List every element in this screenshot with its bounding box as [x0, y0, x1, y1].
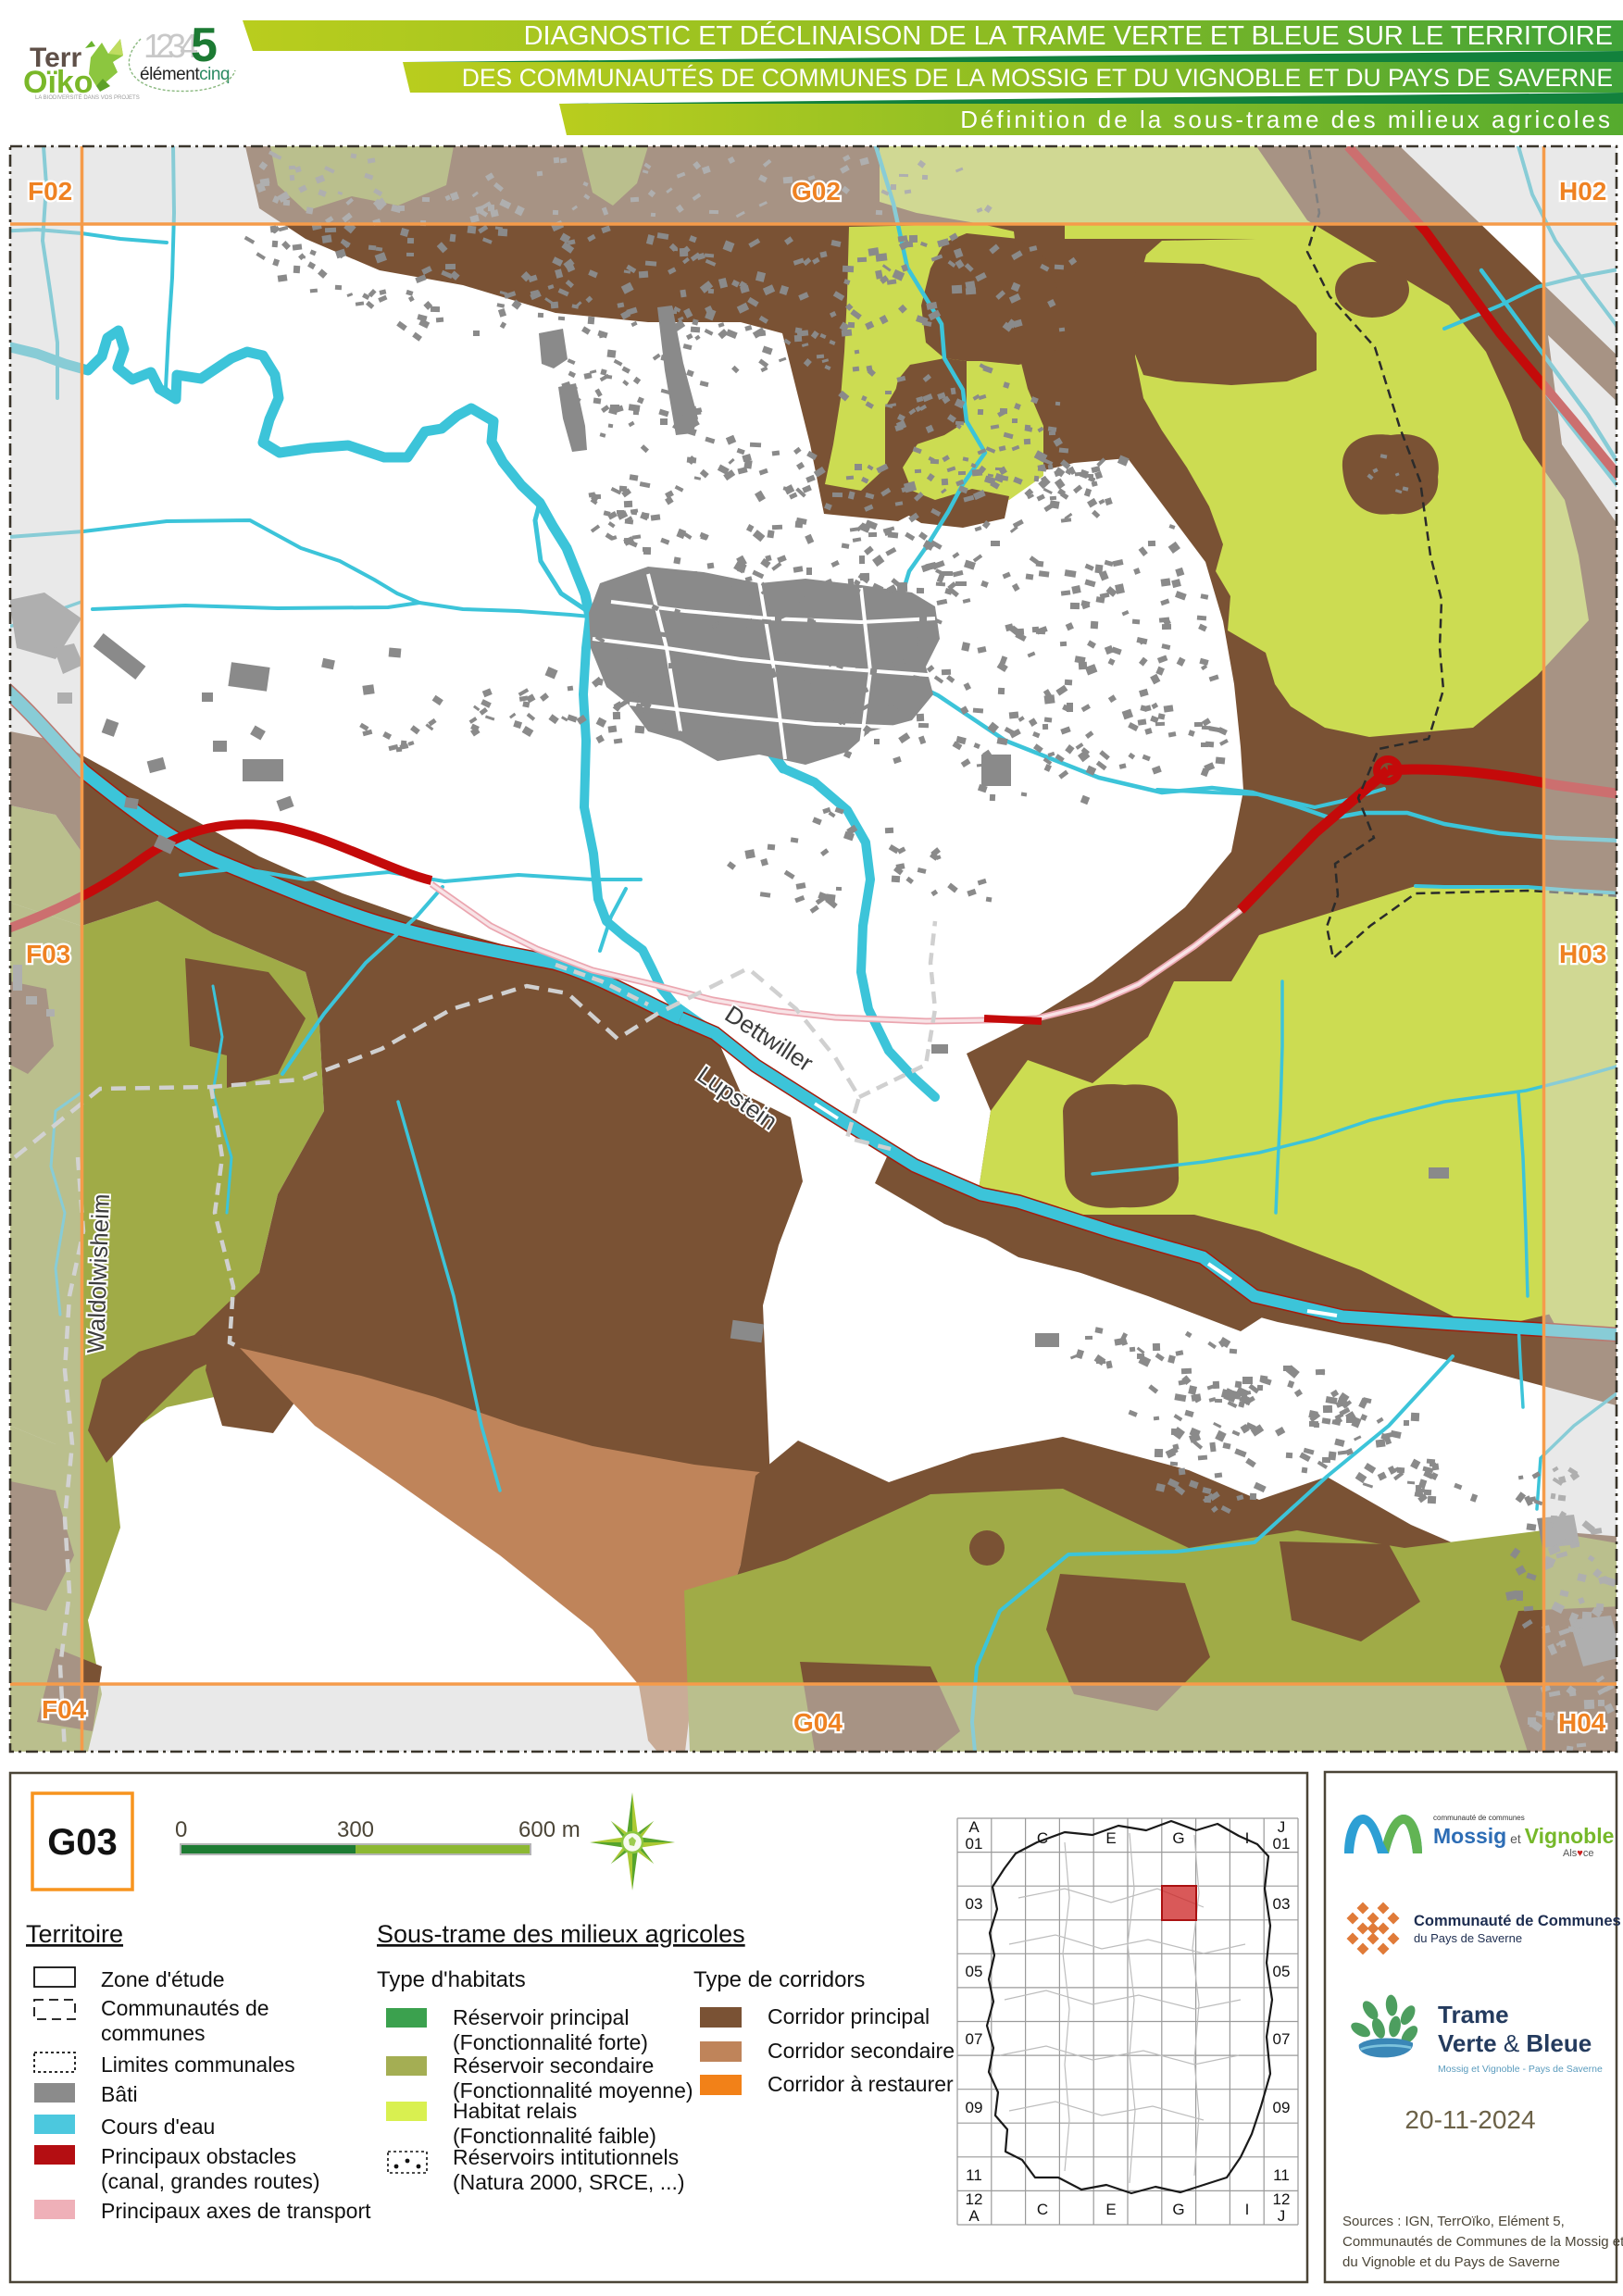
svg-text:F02: F02: [28, 177, 72, 206]
svg-text:Principaux axes de transport: Principaux axes de transport: [101, 2199, 371, 2223]
svg-text:Communauté de Communes: Communauté de Communes: [1414, 1913, 1621, 1929]
svg-text:G04: G04: [793, 1708, 843, 1737]
svg-text:Réservoir principal: Réservoir principal: [453, 2005, 629, 2029]
svg-text:G: G: [1172, 2201, 1184, 2218]
svg-text:E: E: [1105, 2201, 1116, 2218]
svg-text:H04: H04: [1558, 1708, 1606, 1737]
svg-text:Type d'habitats: Type d'habitats: [377, 1967, 526, 1992]
svg-text:C: C: [1037, 2201, 1048, 2218]
svg-text:communes: communes: [101, 2021, 205, 2045]
svg-text:05: 05: [966, 1963, 983, 1980]
svg-text:A: A: [968, 2207, 980, 2225]
svg-text:I: I: [1245, 2201, 1250, 2218]
svg-text:01: 01: [966, 1835, 983, 1853]
svg-text:01: 01: [1273, 1835, 1291, 1853]
svg-text:(canal, grandes routes): (canal, grandes routes): [101, 2169, 320, 2193]
svg-text:J: J: [1278, 1818, 1286, 1836]
svg-text:03: 03: [1273, 1895, 1291, 1913]
svg-text:0: 0: [175, 1817, 187, 1842]
svg-text:élémentcinq: élémentcinq: [140, 65, 230, 84]
svg-text:du Pays de Saverne: du Pays de Saverne: [1414, 1931, 1522, 1945]
svg-text:Communautés de: Communautés de: [101, 1996, 269, 2020]
svg-text:12: 12: [1273, 2190, 1291, 2208]
svg-text:Corridor secondaire: Corridor secondaire: [768, 2039, 955, 2063]
svg-text:Cours d'eau: Cours d'eau: [101, 2115, 215, 2139]
svg-text:Zone d'étude: Zone d'étude: [101, 1967, 225, 1991]
svg-text:300: 300: [337, 1817, 374, 1842]
svg-text:(Fonctionnalité forte): (Fonctionnalité forte): [453, 2030, 648, 2054]
svg-text:Bâti: Bâti: [101, 2082, 138, 2106]
svg-text:F04: F04: [42, 1695, 87, 1724]
svg-text:(Natura 2000, SRCE, ...): (Natura 2000, SRCE, ...): [453, 2170, 685, 2194]
svg-text:C: C: [1037, 1829, 1048, 1847]
svg-text:Limites communales: Limites communales: [101, 2053, 295, 2077]
svg-text:1234: 1234: [144, 27, 197, 65]
svg-text:07: 07: [966, 2030, 983, 2048]
svg-text:G: G: [1172, 1829, 1184, 1847]
svg-text:Verte & Bleue: Verte & Bleue: [1438, 2029, 1592, 2057]
svg-text:Réservoir secondaire: Réservoir secondaire: [453, 2053, 654, 2078]
svg-text:Principaux obstacles: Principaux obstacles: [101, 2144, 296, 2168]
svg-text:Territoire: Territoire: [26, 1920, 123, 1948]
svg-text:J: J: [1278, 2207, 1286, 2225]
svg-text:G03: G03: [47, 1822, 118, 1863]
svg-text:Mossig et Vignoble - Pays de S: Mossig et Vignoble - Pays de Saverne: [1438, 2064, 1603, 2075]
svg-text:LA BIODIVERSITÉ DANS VOS PROJE: LA BIODIVERSITÉ DANS VOS PROJETS: [35, 94, 140, 101]
svg-text:05: 05: [1273, 1963, 1291, 1980]
svg-text:A: A: [968, 1818, 980, 1836]
svg-text:E: E: [1105, 1829, 1116, 1847]
svg-text:Trame: Trame: [1438, 2001, 1509, 2028]
svg-text:H02: H02: [1559, 177, 1606, 206]
svg-text:communauté de communes: communauté de communes: [1433, 1814, 1525, 1822]
svg-text:Type de corridors: Type de corridors: [693, 1967, 865, 1992]
svg-text:Waldolwisheim: Waldolwisheim: [81, 1193, 115, 1354]
svg-text:11: 11: [966, 2166, 982, 2184]
svg-text:G02: G02: [792, 177, 841, 206]
svg-text:03: 03: [966, 1895, 983, 1913]
svg-text:11: 11: [1273, 2166, 1290, 2184]
svg-text:DES COMMUNAUTÉS DE COMMUNES DE: DES COMMUNAUTÉS DE COMMUNES DE LA MOSSIG…: [462, 64, 1613, 92]
svg-text:Sous-trame des milieux agricol: Sous-trame des milieux agricoles: [377, 1920, 745, 1948]
svg-text:Habitat relais: Habitat relais: [453, 2099, 577, 2123]
svg-text:20-11-2024: 20-11-2024: [1405, 2105, 1535, 2134]
svg-text:H03: H03: [1559, 940, 1606, 968]
svg-text:07: 07: [1273, 2030, 1291, 2048]
svg-text:12: 12: [966, 2190, 983, 2208]
svg-text:Corridor principal: Corridor principal: [768, 2004, 930, 2028]
svg-text:Corridor à restaurer: Corridor à restaurer: [768, 2072, 954, 2096]
svg-text:09: 09: [1273, 2099, 1291, 2116]
svg-text:DIAGNOSTIC ET DÉCLINAISON DE L: DIAGNOSTIC ET DÉCLINAISON DE LA TRAME VE…: [524, 20, 1613, 51]
svg-text:Sources : IGN, TerrOïko, Eléme: Sources : IGN, TerrOïko, Elément 5,: [1342, 2214, 1565, 2229]
svg-text:Réservoirs intitutionnels: Réservoirs intitutionnels: [453, 2145, 679, 2169]
svg-text:du Vignoble et du Pays de Save: du Vignoble et du Pays de Saverne: [1342, 2254, 1560, 2270]
svg-text:09: 09: [966, 2099, 983, 2116]
svg-text:600 m: 600 m: [518, 1817, 581, 1842]
svg-text:F03: F03: [26, 940, 70, 968]
svg-text:Communautés de Communes de la: Communautés de Communes de la Mossig et: [1342, 2234, 1623, 2250]
svg-text:I: I: [1245, 1829, 1250, 1847]
svg-text:Als♥ce: Als♥ce: [1563, 1848, 1593, 1859]
svg-text:Définition de la sous-trame de: Définition de la sous-trame des milieux …: [960, 106, 1613, 133]
